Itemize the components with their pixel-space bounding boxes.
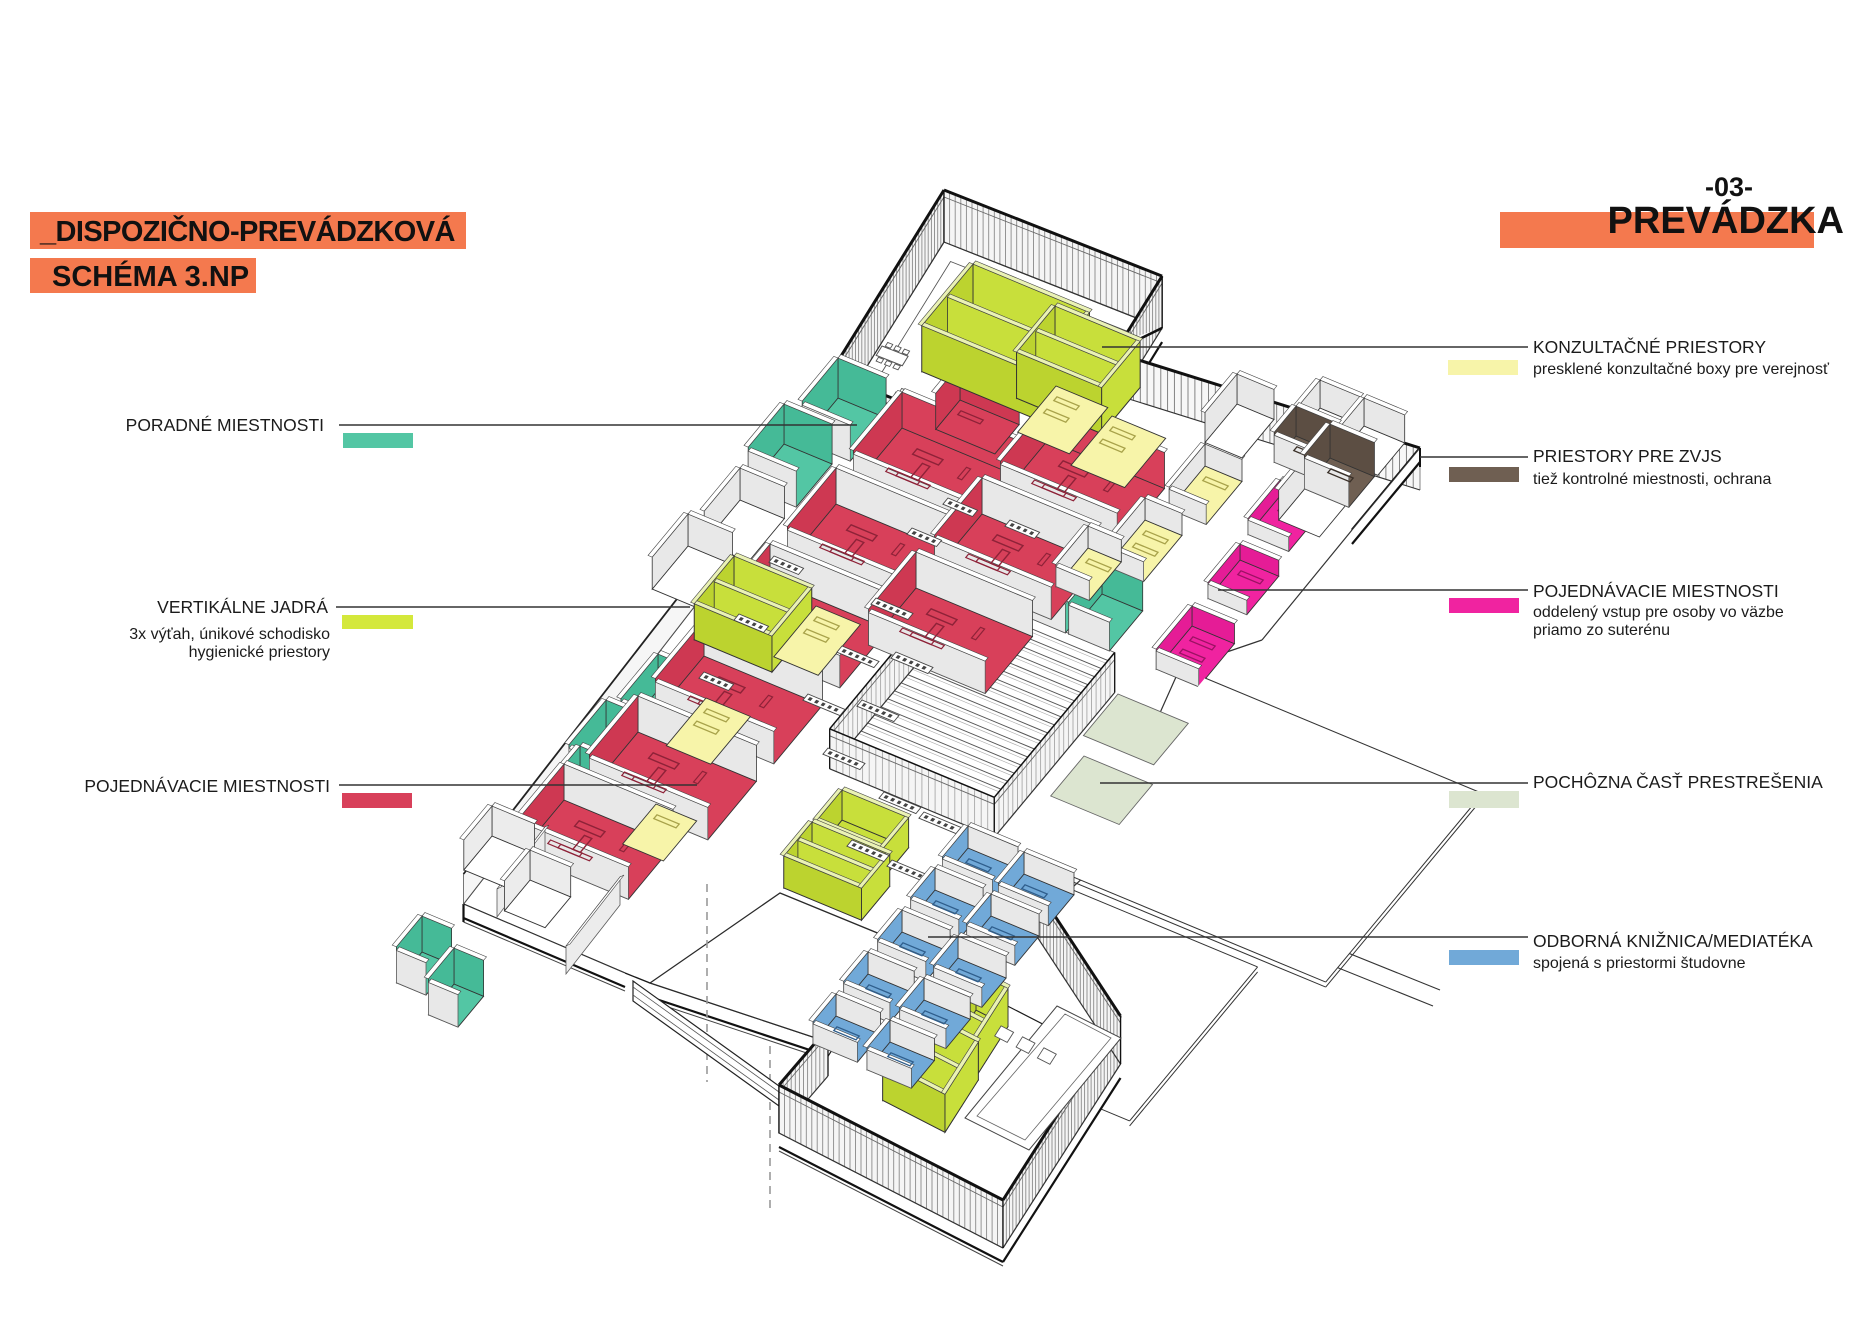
svg-text:PREVÁDZKA: PREVÁDZKA: [1608, 198, 1844, 242]
svg-text:hygienické priestory: hygienické priestory: [189, 644, 330, 661]
svg-text:priamo zo suterénu: priamo zo suterénu: [1533, 622, 1670, 639]
svg-text:POJEDNÁVACIE MIESTNOSTI: POJEDNÁVACIE MIESTNOSTI: [84, 776, 330, 796]
svg-text:PORADNÉ MIESTNOSTI: PORADNÉ MIESTNOSTI: [126, 415, 324, 435]
svg-text:ODBORNÁ KNIŽNICA/MEDIATÉKA: ODBORNÁ KNIŽNICA/MEDIATÉKA: [1533, 931, 1813, 951]
svg-text:-03-: -03-: [1705, 172, 1753, 202]
svg-text:presklené konzultačné boxy pre: presklené konzultačné boxy pre verejnosť: [1533, 361, 1830, 378]
svg-text:POJEDNÁVACIE MIESTNOSTI: POJEDNÁVACIE MIESTNOSTI: [1533, 581, 1779, 601]
svg-text:_DISPOZIČNO-PREVÁDZKOVÁ: _DISPOZIČNO-PREVÁDZKOVÁ: [39, 214, 455, 248]
svg-text:tiež kontrolné miestnosti, och: tiež kontrolné miestnosti, ochrana: [1533, 471, 1771, 488]
svg-text:3x výťah, únikové schodisko: 3x výťah, únikové schodisko: [129, 626, 330, 643]
svg-text:spojená s priestormi študovne: spojená s priestormi študovne: [1533, 955, 1746, 972]
svg-text:PRIESTORY PRE ZVJS: PRIESTORY PRE ZVJS: [1533, 446, 1722, 466]
svg-text:POCHÔZNA ČASŤ PRESTREŠENIA: POCHÔZNA ČASŤ PRESTREŠENIA: [1533, 771, 1823, 792]
svg-text:SCHÉMA 3.NP: SCHÉMA 3.NP: [52, 259, 249, 293]
svg-text:oddelený vstup pre osoby vo vä: oddelený vstup pre osoby vo väzbe: [1533, 604, 1784, 621]
svg-text:KONZULTAČNÉ PRIESTORY: KONZULTAČNÉ PRIESTORY: [1533, 336, 1766, 357]
svg-text:VERTIKÁLNE JADRÁ: VERTIKÁLNE JADRÁ: [157, 597, 328, 617]
